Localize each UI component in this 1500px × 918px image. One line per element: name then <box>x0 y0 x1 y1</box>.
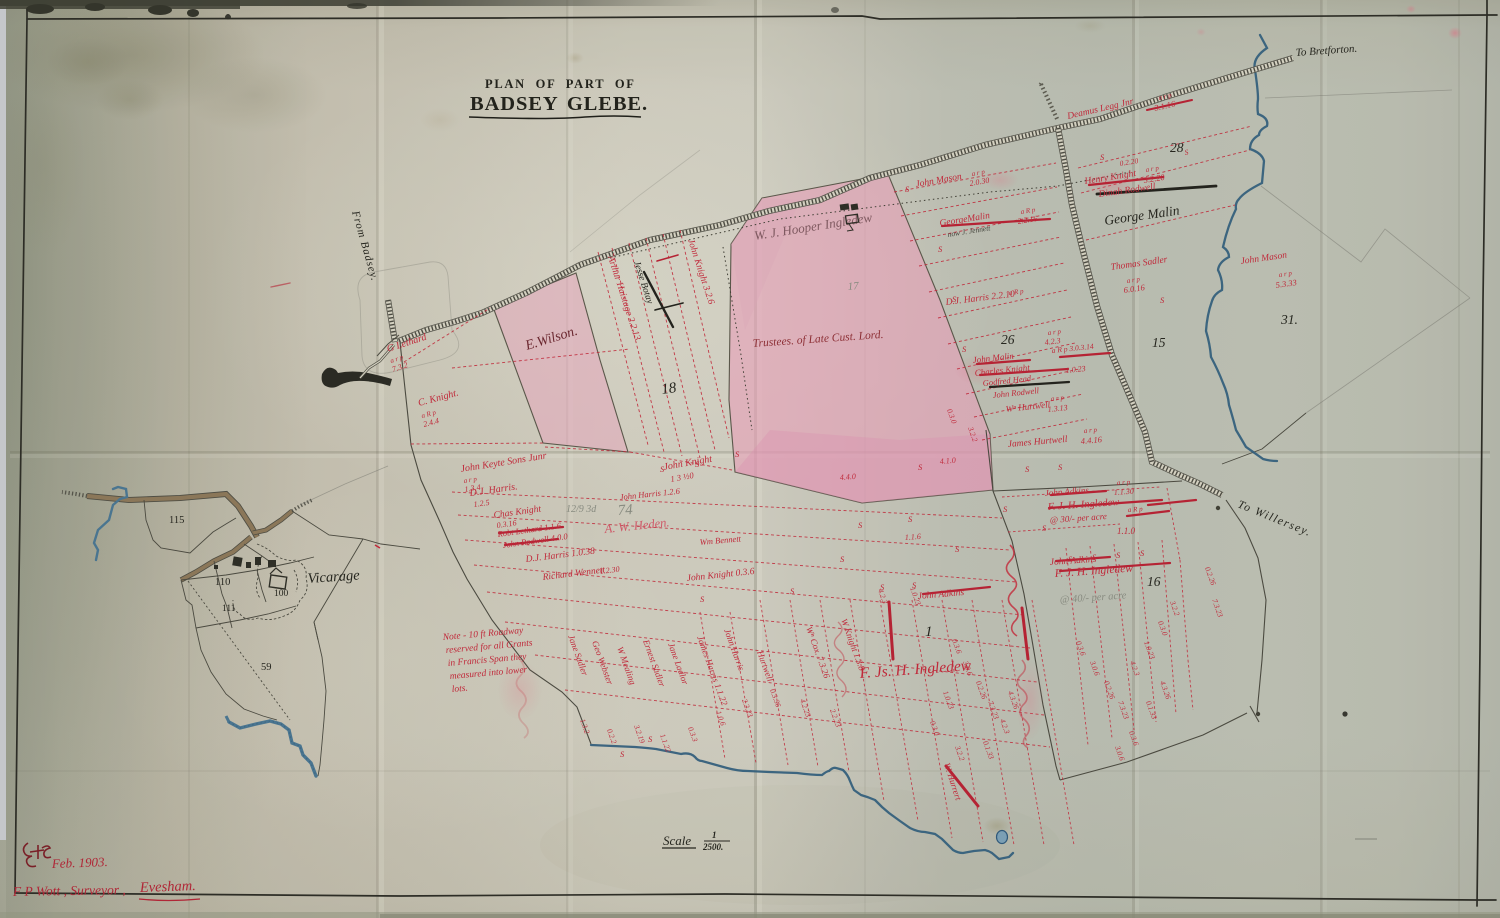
svg-text:12/9 3d: 12/9 3d <box>566 504 597 515</box>
svg-text:110: 110 <box>215 577 230 588</box>
svg-text:115: 115 <box>169 515 184 526</box>
svg-text:2500.: 2500. <box>702 842 723 852</box>
svg-text:a r p: a r p <box>1117 478 1131 487</box>
svg-text:Scale: Scale <box>663 833 691 848</box>
svg-text:1.1.30: 1.1.30 <box>1114 487 1135 497</box>
svg-text:15: 15 <box>1152 335 1166 350</box>
svg-text:1: 1 <box>925 624 933 640</box>
svg-text:a r p: a r p <box>1083 426 1097 435</box>
svg-text:59: 59 <box>261 662 272 673</box>
svg-text:74: 74 <box>617 502 634 519</box>
svg-text:4.4.0: 4.4.0 <box>840 472 857 482</box>
svg-text:lots.: lots. <box>451 684 468 695</box>
svg-text:4.4.16: 4.4.16 <box>1080 434 1103 446</box>
svg-text:26: 26 <box>1001 332 1015 347</box>
svg-text:16: 16 <box>1147 574 1161 589</box>
svg-text:100: 100 <box>274 589 289 599</box>
svg-text:18: 18 <box>660 380 678 398</box>
svg-text:4.1.0: 4.1.0 <box>939 456 956 466</box>
svg-text:F P Wott , Surveyor ,: F P Wott , Surveyor , <box>12 882 126 899</box>
svg-text:28: 28 <box>1170 140 1184 155</box>
svg-text:Feb. 1903.: Feb. 1903. <box>51 854 108 871</box>
svg-text:a R p: a R p <box>1128 505 1144 514</box>
svg-text:17: 17 <box>847 280 860 293</box>
svg-text:31.: 31. <box>1280 312 1298 327</box>
svg-text:111: 111 <box>222 604 236 614</box>
svg-text:BADSEY GLEBE.: BADSEY GLEBE. <box>470 93 648 115</box>
svg-text:a r p: a r p <box>1050 394 1064 403</box>
svg-text:1.1.0: 1.1.0 <box>1117 526 1136 536</box>
svg-text:Evesham.: Evesham. <box>139 878 196 896</box>
svg-text:1: 1 <box>712 830 717 840</box>
svg-text:PLAN OF PART OF: PLAN OF PART OF <box>485 77 636 91</box>
svg-text:1.1.6: 1.1.6 <box>905 532 922 542</box>
